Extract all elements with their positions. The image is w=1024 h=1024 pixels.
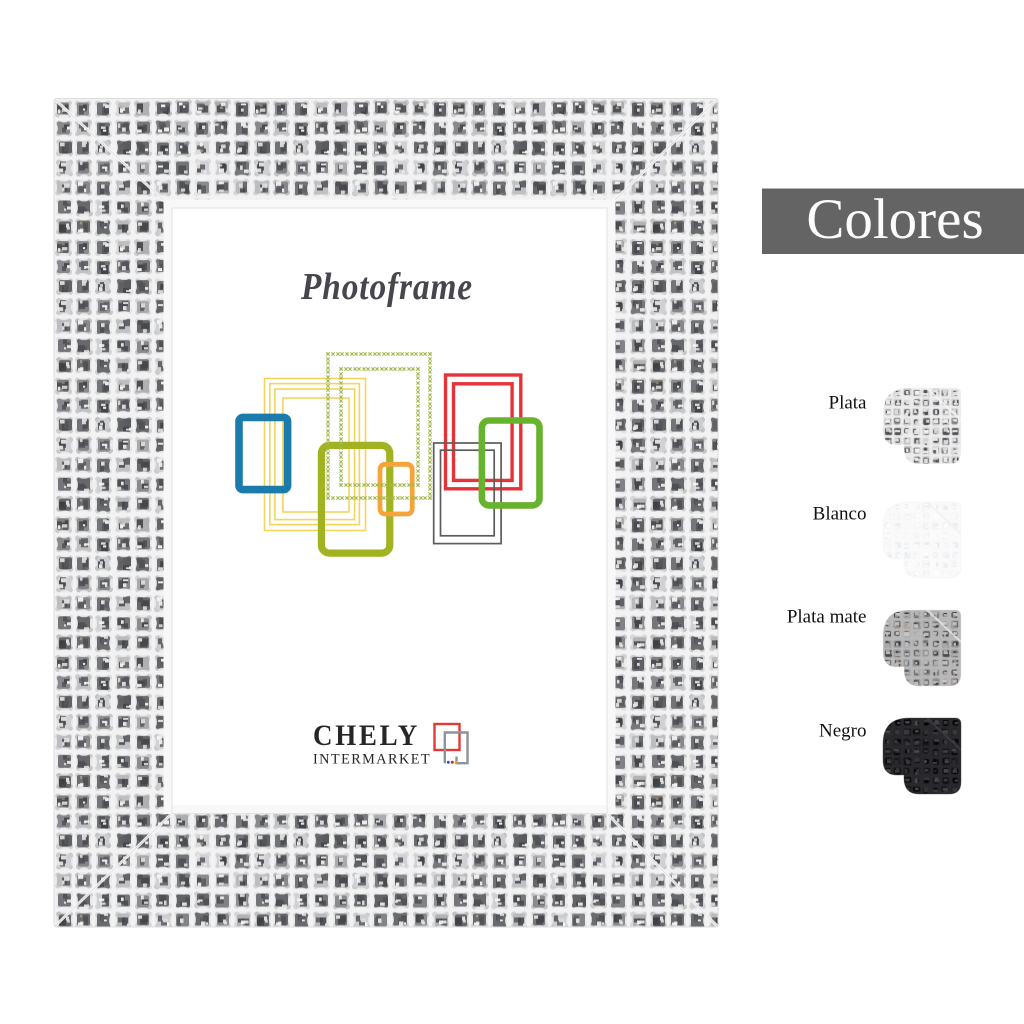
- svg-text:Negro: Negro: [819, 721, 866, 742]
- svg-text:Blanco: Blanco: [813, 504, 867, 525]
- svg-text:Photoframe: Photoframe: [300, 266, 473, 308]
- svg-text:CHELY: CHELY: [313, 719, 420, 752]
- svg-text:Colores: Colores: [806, 188, 983, 251]
- svg-text:Plata: Plata: [829, 393, 868, 414]
- svg-text:Plata mate: Plata mate: [787, 607, 867, 628]
- svg-text:INTERMARKET: INTERMARKET: [313, 752, 431, 768]
